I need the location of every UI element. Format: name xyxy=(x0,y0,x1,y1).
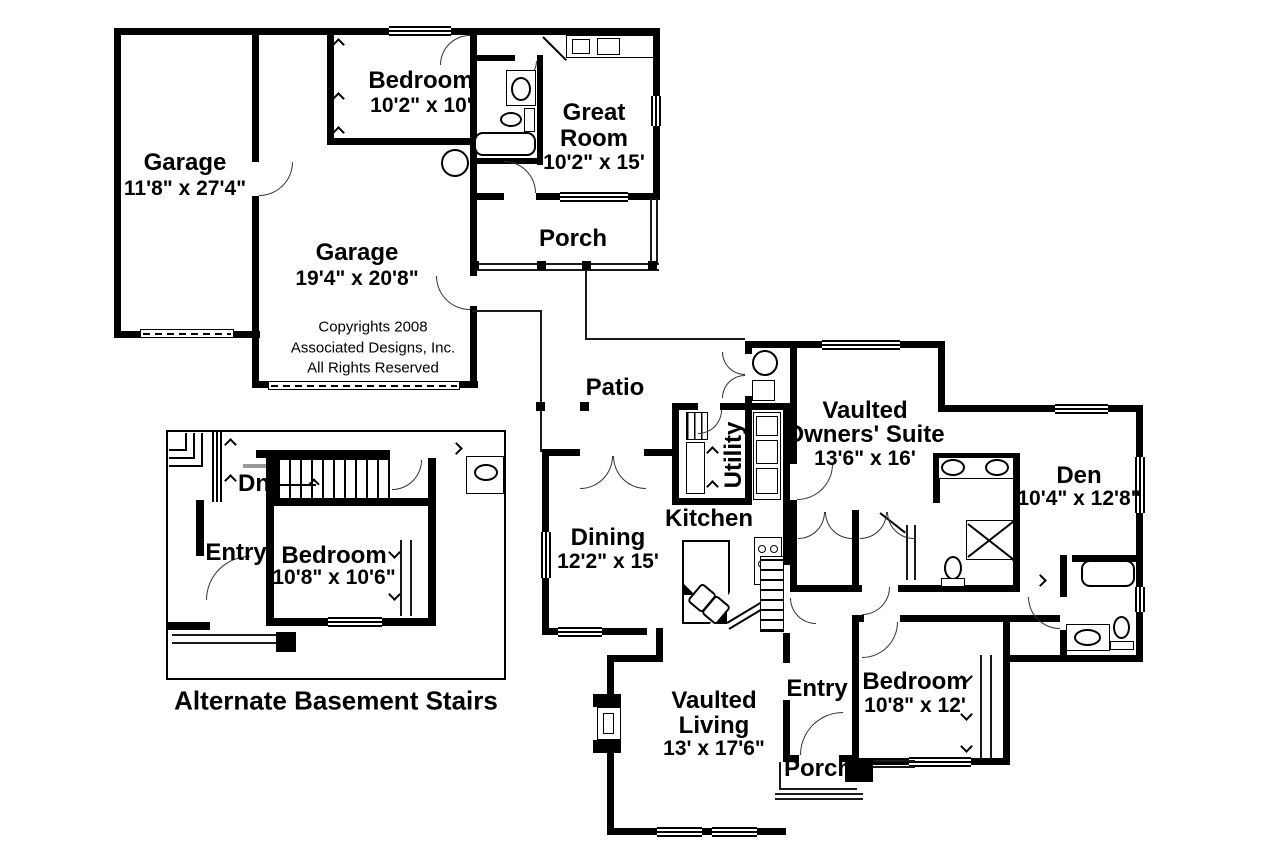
wall xyxy=(266,498,274,626)
wall xyxy=(382,618,436,626)
wall xyxy=(196,500,204,556)
sink xyxy=(474,464,498,481)
wall xyxy=(166,622,210,630)
inset-dn-label: Dn xyxy=(238,470,270,498)
wall xyxy=(266,618,328,626)
wall xyxy=(266,498,436,506)
window xyxy=(328,617,382,627)
garage-corner-lines xyxy=(169,433,187,451)
closet-line xyxy=(410,540,412,616)
step-line xyxy=(172,634,276,636)
inset-bedroom-dims: 10'8" x 10'6" xyxy=(272,566,395,590)
window xyxy=(212,432,222,502)
basement-inset: Dn Entry Bedroom 10'8" x 10'6" Alternate… xyxy=(0,0,1280,853)
inset-entry-label: Entry xyxy=(205,539,266,567)
step-block xyxy=(276,632,296,652)
step-line xyxy=(172,642,276,644)
wall xyxy=(428,458,436,626)
stairs xyxy=(276,458,390,502)
wall xyxy=(256,450,390,458)
floor-plan: Garage 11'8" x 27'4" Garage 19'4" x 20'8… xyxy=(0,0,1280,853)
inset-caption: Alternate Basement Stairs xyxy=(174,686,498,717)
